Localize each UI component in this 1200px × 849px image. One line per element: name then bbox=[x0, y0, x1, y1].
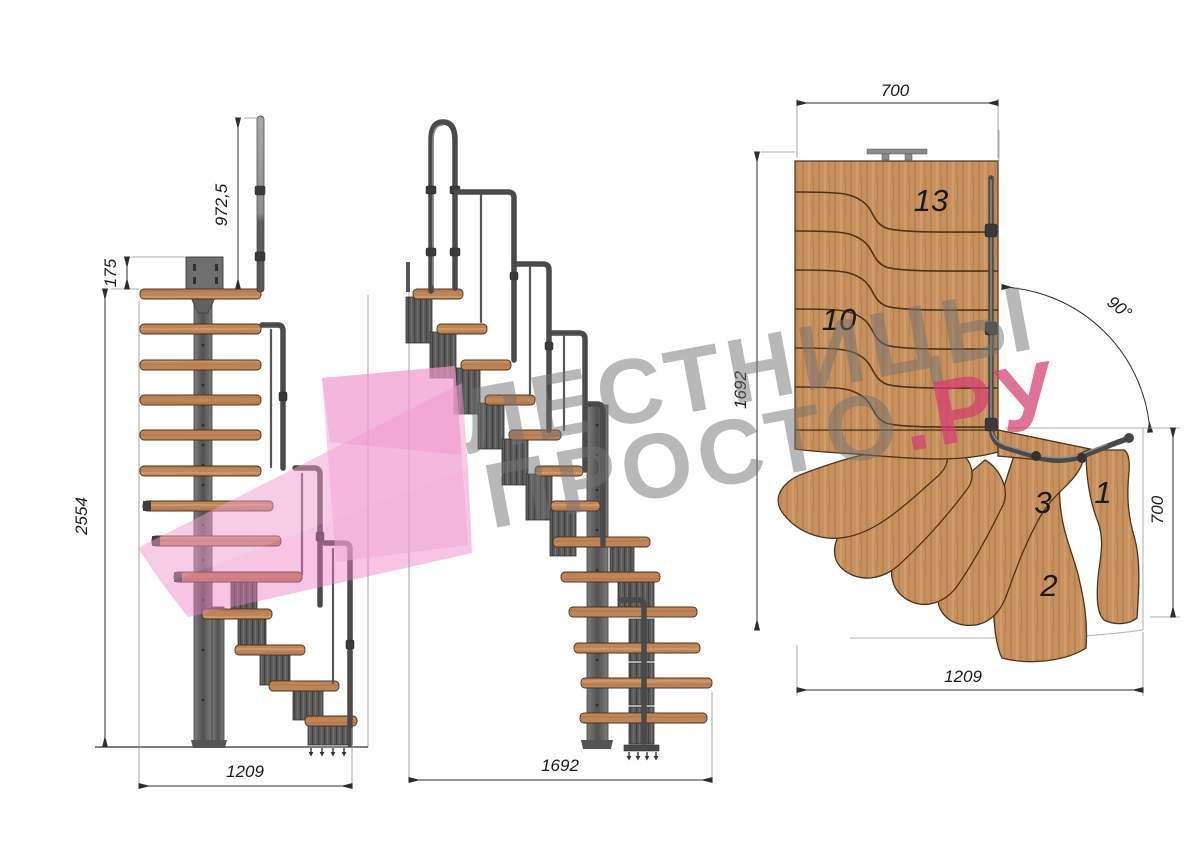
dim-plan-right-width: 700 bbox=[1148, 495, 1167, 524]
dim-plan-bottom-length: 1209 bbox=[944, 667, 982, 686]
step-label-1: 1 bbox=[1094, 475, 1111, 510]
step-label-2: 2 bbox=[1039, 568, 1057, 603]
step-label-13: 13 bbox=[914, 183, 948, 218]
drawing-page: 972,5 175 2554 1209 bbox=[0, 0, 1200, 849]
side-elevation-view: 972,5 175 2554 1209 bbox=[72, 116, 368, 786]
dim-front-total-run: 1692 bbox=[541, 756, 579, 775]
dim-side-plate-offset: 175 bbox=[101, 258, 120, 287]
dim-side-rail-height: 972,5 bbox=[212, 183, 231, 226]
step-label-3: 3 bbox=[1034, 485, 1051, 520]
dim-plan-turn-angle: 90° bbox=[1103, 292, 1135, 323]
dim-side-total-height: 2554 bbox=[72, 497, 91, 536]
staircase-drawing: 972,5 175 2554 1209 bbox=[0, 0, 1200, 849]
dim-plan-top-width: 700 bbox=[881, 81, 910, 100]
dim-side-total-run: 1209 bbox=[226, 762, 264, 781]
